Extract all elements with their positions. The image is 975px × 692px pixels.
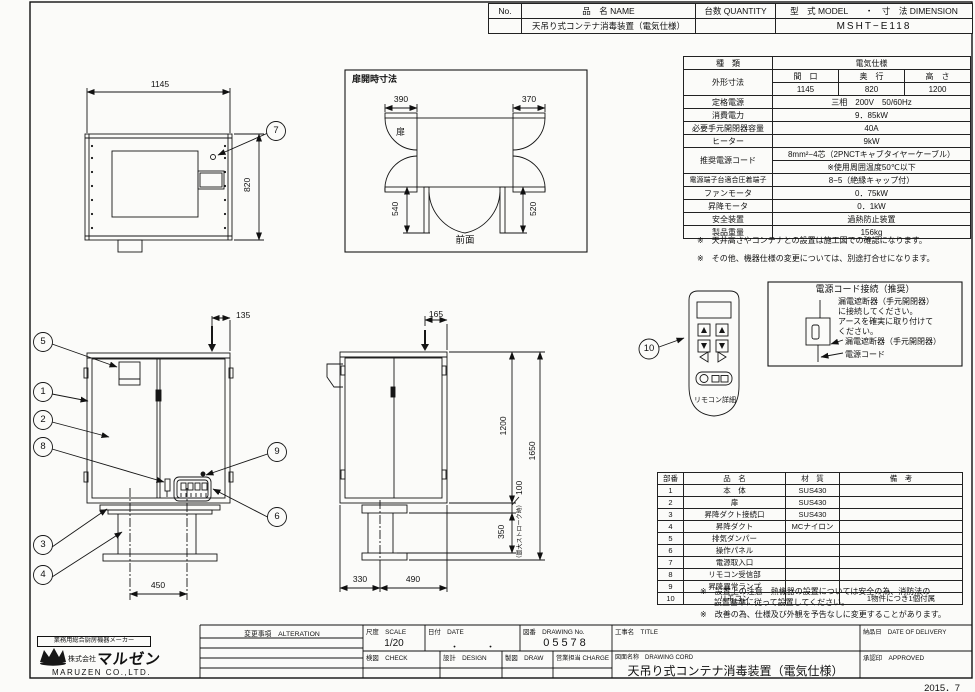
design-label: 設計 DESIGN xyxy=(443,653,487,662)
power-box-line1: 漏電遮断器（手元開閉器） xyxy=(838,297,934,306)
parts-header-note: 備 考 xyxy=(840,473,963,485)
spec-row-value: 三相 200V 50/60Hz xyxy=(773,96,971,109)
delivery-label: 納品日 DATE OF DELIVERY xyxy=(863,627,946,636)
parts-cell: SUS430 xyxy=(786,509,840,521)
parts-cell: 電源取入口 xyxy=(684,557,786,569)
parts-cell: 7 xyxy=(658,557,684,569)
callout-5: 5 xyxy=(33,336,53,347)
remote-caption: リモコン詳細 xyxy=(686,397,744,405)
parts-cell: 8 xyxy=(658,569,684,581)
dim-door-right: 520 xyxy=(529,189,539,229)
spec-row-label: ヒーター xyxy=(684,135,773,148)
drawing-sheet: No. 品 名 NAME 台数 QUANTITY 型 式 MODEL ・ 寸 法… xyxy=(0,0,975,692)
spec-size-col-1: 奥 行 xyxy=(839,70,905,83)
spec-row-label: 必要手元開閉器容量 xyxy=(684,122,773,135)
power-box-title: 電源コード接続（推奨） xyxy=(768,284,962,294)
header-qty-value xyxy=(696,19,776,34)
parts-header-no: 部番 xyxy=(658,473,684,485)
dim-side-duct-left: 330 xyxy=(340,575,380,585)
project-label: 工事名 TITLE xyxy=(615,627,658,636)
spec-row-value: 9．85kW xyxy=(773,109,971,122)
front-view-drawing xyxy=(34,316,287,600)
spec-row-value: 8mm²−4芯（2PNCTキャブタイヤーケーブル） xyxy=(773,148,971,161)
parts-cell: 5 xyxy=(658,533,684,545)
parts-cell: 3 xyxy=(658,509,684,521)
callout-7: 7 xyxy=(266,125,286,136)
dwg-no-label: 図番 DRAWING No. xyxy=(523,627,585,636)
spec-kind-label: 種 類 xyxy=(684,57,773,70)
dim-door-left: 540 xyxy=(391,189,401,229)
callout-6: 6 xyxy=(267,511,287,522)
check-label: 検図 CHECK xyxy=(366,653,408,662)
callout-2: 2 xyxy=(33,414,53,425)
spec-row-value: 40A xyxy=(773,122,971,135)
callout-1: 1 xyxy=(33,386,53,397)
header-name-value: 天吊り式コンテナ消毒装置（電気仕様） xyxy=(522,19,696,34)
parts-cell xyxy=(840,509,963,521)
spec-row-label: 昇降モータ xyxy=(684,200,773,213)
power-box-breaker-label: 漏電遮断器（手元開閉器） xyxy=(845,337,941,346)
approved-label: 承認印 APPROVED xyxy=(863,653,924,662)
spec-table: 種 類 電気仕様 外形寸法 間 口 奥 行 高 さ 1145 820 1200 … xyxy=(683,56,971,239)
parts-cell xyxy=(786,569,840,581)
dim-side-stroke-note: （最大ストローク時） xyxy=(518,496,525,566)
company-en: MARUZEN CO.,LTD. xyxy=(52,668,151,677)
dim-side-body-height: 1200 xyxy=(499,406,509,446)
parts-cell: 操作パネル xyxy=(684,545,786,557)
header-table: No. 品 名 NAME 台数 QUANTITY 型 式 MODEL ・ 寸 法… xyxy=(488,3,973,34)
scale-value: 1/20 xyxy=(363,638,425,649)
parts-cell: SUS430 xyxy=(786,485,840,497)
spec-row-value: 9kW xyxy=(773,135,971,148)
header-qty-label: 台数 QUANTITY xyxy=(696,4,776,19)
dim-top-depth: 820 xyxy=(243,165,253,205)
parts-cell xyxy=(840,533,963,545)
power-box-line2: に接続してください。 xyxy=(838,307,918,316)
parts-cell xyxy=(840,545,963,557)
maruzen-logo: マルゼン xyxy=(96,648,162,669)
top-view-drawing xyxy=(85,88,286,252)
charge-label: 営業担当 CHARGE xyxy=(556,653,609,662)
dim-front-offset: 135 xyxy=(236,311,250,321)
spec-note-2: ※ その他、機器仕様の変更については、別途打合せになります。 xyxy=(697,254,935,263)
maruzen-crown-icon xyxy=(40,648,66,666)
parts-cell: 6 xyxy=(658,545,684,557)
date-value: ・ ・ xyxy=(425,640,520,653)
parts-cell: 昇降ダクト xyxy=(684,521,786,533)
maker-tagline: 業務用総合厨房機器メーカー xyxy=(37,636,151,647)
parts-cell xyxy=(840,497,963,509)
alteration-label: 変更事項 ALTERATION xyxy=(203,628,361,638)
header-no-label: No. xyxy=(489,4,522,19)
parts-note-1b: 設置基準に従って設置してください。 xyxy=(714,598,849,607)
dim-side-duct-right: 490 xyxy=(393,575,433,585)
spec-size-col-2: 高 さ xyxy=(905,70,971,83)
dwg-name-value: 天吊り式コンテナ消毒装置（電気仕様） xyxy=(613,662,858,679)
callout-10: 10 xyxy=(639,343,659,354)
parts-cell xyxy=(840,569,963,581)
draw-label: 製図 DRAW xyxy=(505,653,543,662)
parts-cell: 排気ダンパー xyxy=(684,533,786,545)
spec-size-label: 外形寸法 xyxy=(684,70,773,96)
parts-cell: 10 xyxy=(658,593,684,605)
dim-front-duct: 450 xyxy=(138,581,178,591)
spec-size-value-0: 1145 xyxy=(773,83,839,96)
parts-cell: SUS430 xyxy=(786,497,840,509)
callout-4: 4 xyxy=(33,569,53,580)
parts-cell: 1 xyxy=(658,485,684,497)
spec-row-label: 推奨電源コード xyxy=(684,148,773,174)
callout-9: 9 xyxy=(267,446,287,457)
dwg-no-value: 05578 xyxy=(520,637,612,649)
door-label: 扉 xyxy=(396,127,405,137)
parts-cell xyxy=(840,521,963,533)
spec-row-value2: ※使用周囲温度50℃以下 xyxy=(773,161,971,174)
spec-row-value: 0．75kW xyxy=(773,187,971,200)
parts-cell: 2 xyxy=(658,497,684,509)
power-box-line4: ください。 xyxy=(838,327,878,336)
parts-header-material: 材 質 xyxy=(786,473,840,485)
header-model-label: 型 式 MODEL ・ 寸 法 DIMENSION xyxy=(776,4,973,19)
door-open-title: 扉開時寸法 xyxy=(352,74,397,84)
scale-label: 尺度 SCALE xyxy=(366,627,406,636)
dim-door-topright: 370 xyxy=(509,95,549,105)
parts-cell: リモコン受信部 xyxy=(684,569,786,581)
dim-door-topleft: 390 xyxy=(381,95,421,105)
spec-note-1: ※ 天井高さやコンテナとの設置は施工図での確認になります。 xyxy=(697,236,927,245)
dim-top-width: 1145 xyxy=(120,80,200,90)
parts-table: 部番 品 名 材 質 備 考 1本 体SUS430 2扉SUS430 3昇降ダク… xyxy=(657,472,963,605)
parts-cell: 昇降ダクト接続口 xyxy=(684,509,786,521)
dim-side-offset: 165 xyxy=(416,310,456,320)
spec-row-label: ファンモータ xyxy=(684,187,773,200)
parts-cell xyxy=(786,545,840,557)
company-prefix: 株式会社 xyxy=(68,654,96,664)
power-box-line3: アースを確実に取り付けて xyxy=(838,317,933,326)
date-label: 日付 DATE xyxy=(428,627,464,636)
parts-note-2: ※ 改善の為、仕様及び外観を予告なしに変更することがあります。 xyxy=(700,610,946,619)
spec-size-value-1: 820 xyxy=(839,83,905,96)
spec-size-value-2: 1200 xyxy=(905,83,971,96)
spec-row-label: 定格電源 xyxy=(684,96,773,109)
header-name-label: 品 名 NAME xyxy=(522,4,696,19)
front-face-label: 前面 xyxy=(445,236,485,247)
spec-row-label: 安全装置 xyxy=(684,213,773,226)
parts-cell xyxy=(786,533,840,545)
parts-cell xyxy=(840,557,963,569)
parts-cell: 9 xyxy=(658,581,684,593)
spec-size-col-0: 間 口 xyxy=(773,70,839,83)
header-no-value xyxy=(489,19,522,34)
parts-cell: 扉 xyxy=(684,497,786,509)
issue-date: 2015．7 xyxy=(880,680,960,692)
dim-side-stroke: 350 xyxy=(497,512,507,552)
dim-side-overall-height: 1650 xyxy=(528,431,538,471)
side-view-drawing xyxy=(327,316,545,592)
parts-cell xyxy=(786,557,840,569)
spec-row-value: 8−5（絶縁キャップ付） xyxy=(773,174,971,187)
spec-row-value: 0．1kW xyxy=(773,200,971,213)
header-model-value: MSHT−E118 xyxy=(776,19,973,34)
callout-3: 3 xyxy=(33,539,53,550)
parts-header-name: 品 名 xyxy=(684,473,786,485)
spec-row-label: 消費電力 xyxy=(684,109,773,122)
parts-cell xyxy=(840,485,963,497)
spec-row-label: 電源端子台適合圧着端子 xyxy=(684,174,773,187)
spec-kind-value: 電気仕様 xyxy=(773,57,971,70)
dwg-name-label: 図面名称 DRAWING CORD xyxy=(615,652,693,661)
power-box-cord-label: 電源コード xyxy=(845,350,885,359)
spec-row-value: 過熱防止装置 xyxy=(773,213,971,226)
callout-8: 8 xyxy=(33,441,53,452)
parts-cell: MCナイロン xyxy=(786,521,840,533)
parts-cell: 4 xyxy=(658,521,684,533)
parts-cell: 本 体 xyxy=(684,485,786,497)
parts-note-1: ※ 設置上の注意 熱機器の設置については安全の為、消防法の xyxy=(700,587,930,596)
